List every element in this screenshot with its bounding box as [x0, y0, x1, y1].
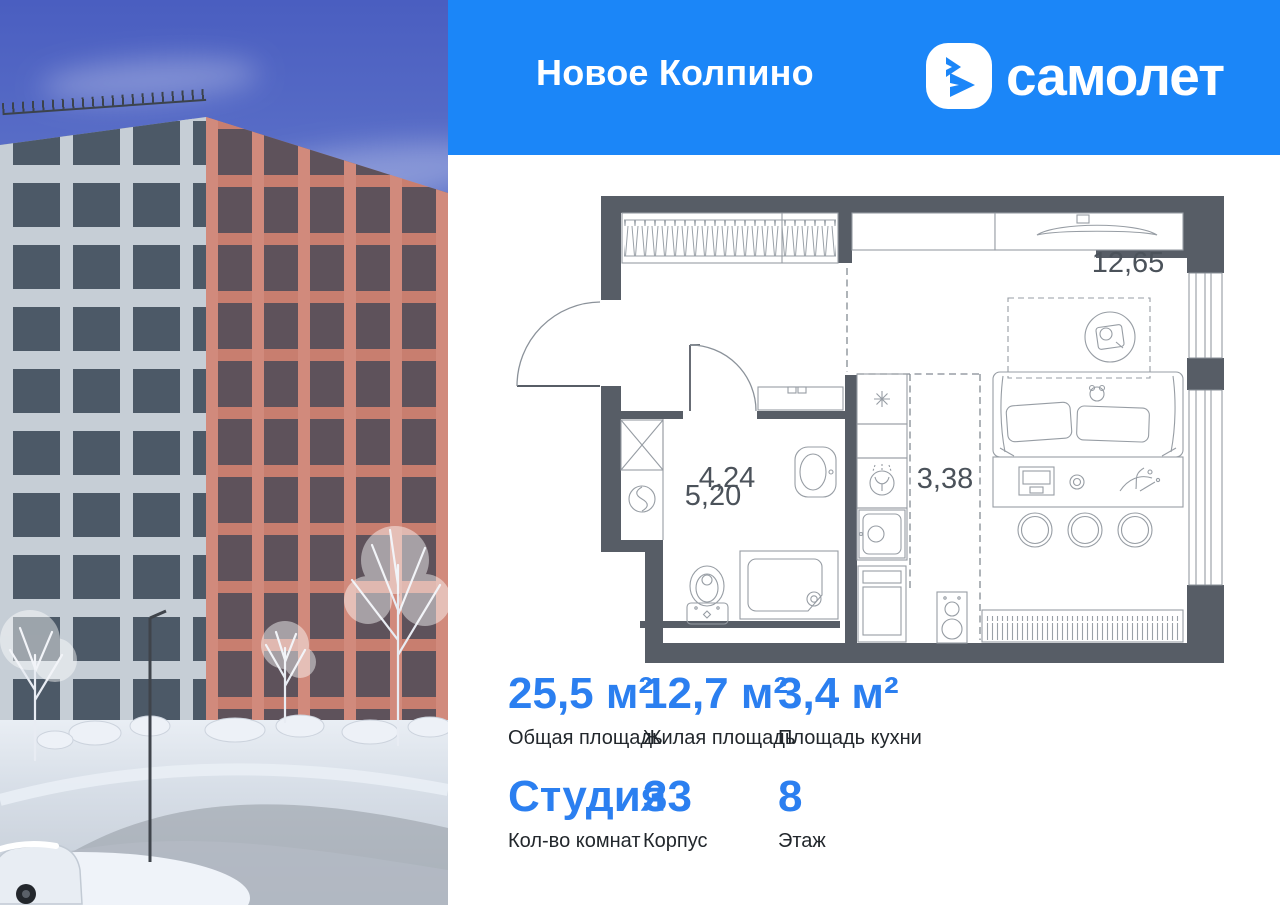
room-area-label: 4,24: [699, 462, 755, 494]
header: Новое Колпино самолет: [448, 0, 1280, 155]
stat-floor: 8 Этаж: [778, 775, 826, 853]
stat-building: 33 Корпус: [643, 775, 708, 853]
stat-kitchen-area: 3,4 м² Площадь кухни: [778, 672, 922, 750]
pillow: [1006, 402, 1072, 442]
room-area-label: 3,38: [917, 463, 973, 495]
project-title: Новое Колпино: [536, 52, 814, 94]
window: [1189, 273, 1222, 585]
shower: [740, 551, 838, 619]
poufs: [1018, 513, 1152, 547]
room-area-labels: 5,20 12,65 4,24 3,38: [685, 247, 1165, 512]
plant: [1120, 468, 1155, 491]
samolet-logo: самолет: [926, 42, 1224, 110]
hallway-console: [758, 387, 843, 410]
building-photo: [0, 0, 448, 905]
kitchen-sink: [859, 510, 905, 558]
flat-promo-card: Новое Колпино самолет: [0, 0, 1280, 905]
carpet: [1008, 298, 1150, 378]
desk: [993, 457, 1183, 507]
stat-label: Этаж: [778, 830, 826, 853]
stat-living-area: 12,7 м² Жилая площадь: [643, 672, 795, 750]
burner: [870, 471, 894, 495]
stat-value: 33: [643, 775, 708, 819]
decor-circle: [1085, 312, 1135, 362]
toy: [1090, 387, 1104, 401]
stove-symbol: [874, 391, 890, 407]
samolet-wordmark: самолет: [1006, 43, 1224, 109]
floor-plan: 5,20 12,65 4,24 3,38: [500, 190, 1240, 670]
stat-label: Площадь кухни: [778, 727, 922, 750]
entrance-door: [517, 302, 600, 386]
stat-value: 3,4 м²: [778, 672, 922, 716]
stat-value: 8: [778, 775, 826, 819]
stat-label: Общая площадь: [508, 727, 663, 750]
stat-total-area: 25,5 м² Общая площадь: [508, 672, 663, 750]
stat-label: Корпус: [643, 830, 708, 853]
stat-label: Жилая площадь: [643, 727, 795, 750]
pillow: [1076, 406, 1149, 442]
toilet: [690, 566, 724, 606]
bathroom-door: [690, 345, 756, 411]
samolet-logo-icon: [926, 43, 992, 109]
car: [0, 844, 82, 904]
zone-dashes: [847, 268, 980, 640]
info-panel: Новое Колпино самолет: [448, 0, 1280, 905]
bed: [993, 372, 1183, 457]
stat-value: 25,5 м²: [508, 672, 663, 716]
radiator: [982, 610, 1183, 642]
wardrobe: [622, 213, 838, 263]
stat-value: 12,7 м²: [643, 672, 795, 716]
kitchen-appliances: [857, 374, 967, 643]
fridge: [858, 566, 906, 642]
upper-cabinet: [852, 213, 995, 250]
winter-scene-overlay: [0, 0, 448, 905]
hob-unit: [937, 592, 967, 643]
room-area-label: 12,65: [1092, 247, 1165, 279]
